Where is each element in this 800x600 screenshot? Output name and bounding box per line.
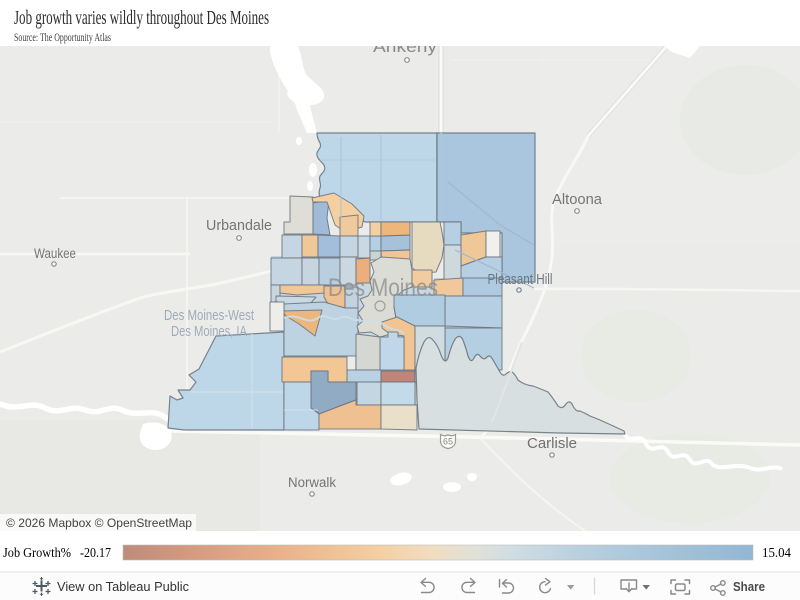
svg-text:Waukee: Waukee xyxy=(34,246,76,261)
svg-text:Job Growth%: Job Growth% xyxy=(3,546,71,561)
svg-text:© 2026 Mapbox © OpenStreetMap: © 2026 Mapbox © OpenStreetMap xyxy=(6,516,192,530)
svg-text:Pleasant Hill: Pleasant Hill xyxy=(488,272,553,288)
svg-text:15.04: 15.04 xyxy=(762,546,791,561)
svg-text:65: 65 xyxy=(443,437,453,447)
svg-text:Ankeny: Ankeny xyxy=(373,37,438,56)
svg-text:Altoona: Altoona xyxy=(552,191,603,208)
svg-text:Job growth varies wildly throu: Job growth varies wildly throughout Des … xyxy=(14,7,269,29)
svg-text:Carlisle: Carlisle xyxy=(527,436,577,452)
svg-text:Source: The Opportunity Atlas: Source: The Opportunity Atlas xyxy=(14,32,111,44)
svg-text:Des Moines, IA: Des Moines, IA xyxy=(171,323,247,340)
svg-text:Urbandale: Urbandale xyxy=(206,217,272,234)
svg-text:Des Moines-West: Des Moines-West xyxy=(164,307,255,324)
svg-text:Des Moines: Des Moines xyxy=(328,274,438,302)
svg-text:-20.17: -20.17 xyxy=(80,546,111,561)
svg-text:Share: Share xyxy=(733,579,765,594)
svg-text:View on Tableau Public: View on Tableau Public xyxy=(57,579,189,594)
svg-text:Norwalk: Norwalk xyxy=(288,475,336,490)
